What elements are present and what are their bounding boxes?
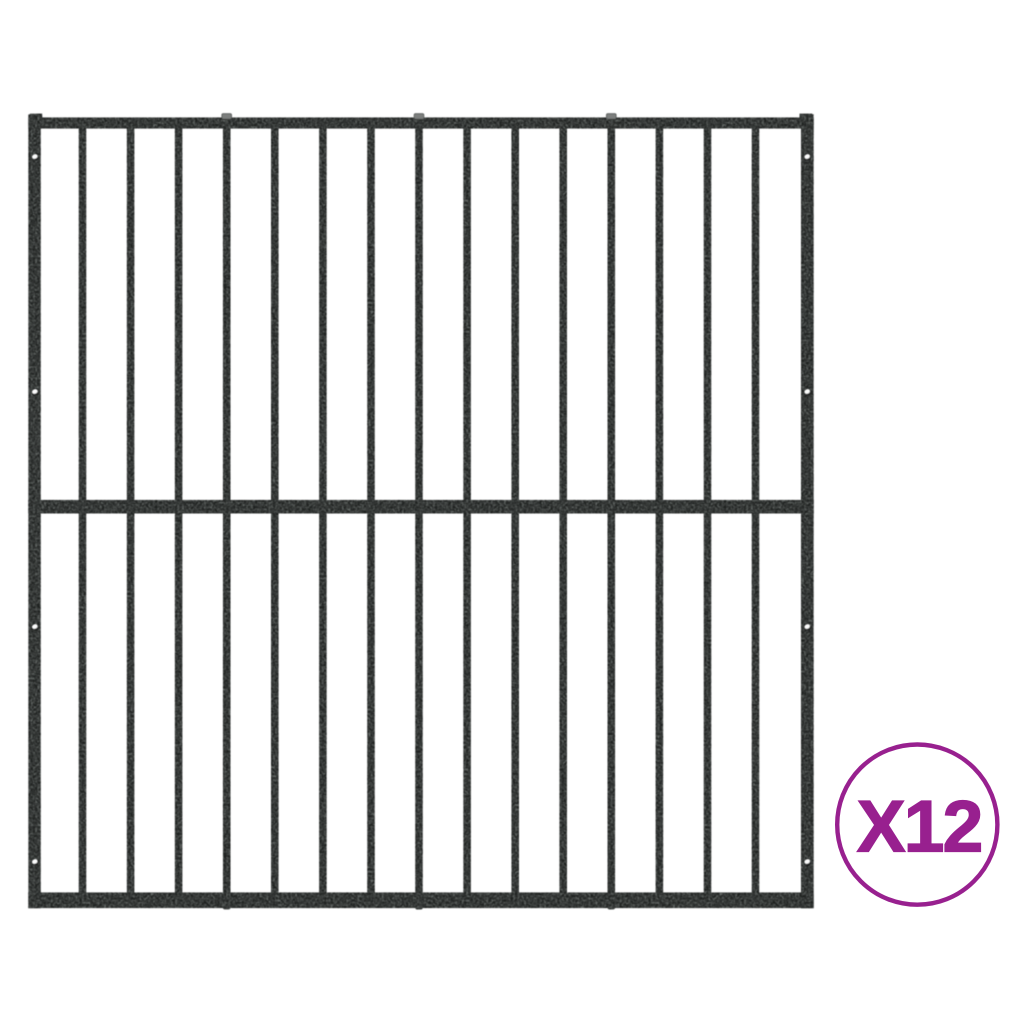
- svg-text:X12: X12: [857, 785, 982, 868]
